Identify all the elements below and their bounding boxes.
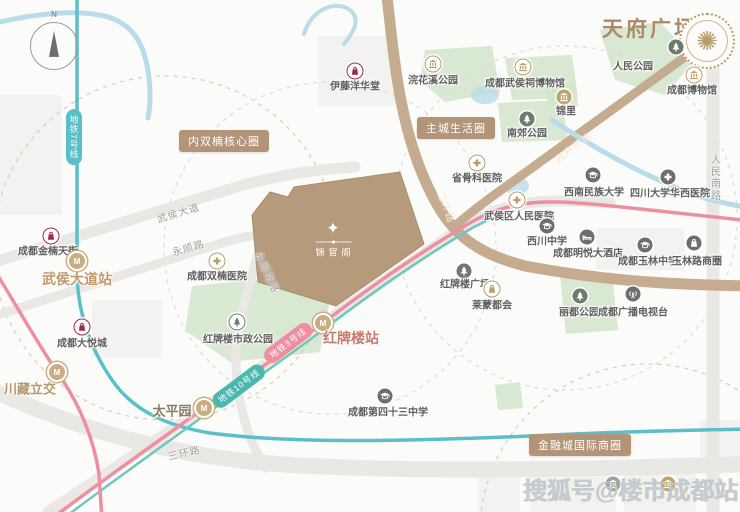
station-name: 武侯大道站	[42, 269, 112, 289]
poi-label: 锦里	[556, 103, 576, 118]
poi-label: 成都第四十三中学	[348, 404, 428, 419]
西南民族大学-icon	[586, 168, 601, 183]
location-map: N 天府广场 ✺ ✦ 锦官阁 伊藤洋华堂浣花溪公园成都武侯祠博物馆人民公园成都博…	[0, 0, 740, 512]
road-label: 人民南路	[707, 154, 722, 202]
人民公园-icon	[669, 40, 684, 55]
浣花溪公园-icon	[425, 56, 442, 73]
成都武侯祠博物馆-icon	[515, 59, 532, 76]
poi-label: 伊藤洋华堂	[330, 78, 380, 93]
station-name: 红牌楼站	[323, 328, 379, 348]
compass-north-label: N	[51, 10, 57, 19]
poi-label: 成都双楠医院	[187, 268, 247, 283]
metro-station-icon: M	[67, 251, 87, 271]
poi-label: 红牌楼广场	[440, 276, 490, 291]
红牌楼市政公园-icon	[229, 314, 246, 331]
metro-station-icon: M	[194, 398, 214, 418]
poi-label: 丽都公园	[559, 304, 599, 319]
project-logo-divider	[315, 242, 351, 243]
四川大学华西医院-icon	[661, 170, 676, 185]
poi-label: 四川大学华西医院	[630, 185, 710, 200]
西川中学-icon	[540, 219, 555, 234]
poi-label: 成都广播电视台	[598, 304, 668, 319]
project-ornament-icon: ✦	[311, 222, 354, 238]
tianfu-square-spiral-icon: ✺	[679, 13, 735, 69]
zone-label: 主城生活圈	[417, 117, 495, 139]
莱蒙都会-icon	[484, 281, 501, 298]
metro-line-label: 地铁7号线	[66, 109, 82, 165]
poi-label: 成都武侯祠博物馆	[485, 75, 565, 90]
sanhuan-road	[0, 388, 740, 470]
compass-needle	[49, 31, 59, 57]
poi-label: 浣花溪公园	[408, 72, 458, 87]
station-name: 川藏立交	[4, 379, 56, 398]
成都第四十三中学-icon	[378, 389, 393, 404]
成都大悦城-icon	[74, 319, 91, 336]
武侯区人民医院-icon	[509, 192, 526, 209]
watermark: 搜狐号@楼市成都站	[523, 471, 738, 506]
poi-label: 莱蒙都会	[472, 297, 512, 312]
poi-label: 南郊公园	[507, 125, 547, 140]
成都玉林中学-icon	[638, 238, 653, 253]
poi-label: 成都大悦城	[57, 335, 107, 350]
poi-label: 红牌楼市政公园	[203, 331, 273, 346]
成都广播电视台-icon	[626, 287, 641, 302]
small-green-area	[495, 382, 523, 410]
成都明悦大酒店-icon	[580, 230, 595, 245]
玉林路商圈-icon	[687, 236, 702, 251]
丽都公园-icon	[573, 289, 588, 304]
poi-label: 成都明悦大酒店	[553, 245, 623, 260]
poi-label: 成都博物馆	[667, 82, 717, 97]
project-name: 锦官阁	[315, 246, 354, 259]
poi-label: 成都玉林中学	[618, 253, 678, 268]
station-name: 太平园	[152, 401, 191, 420]
poi-label: 人民公园	[613, 58, 653, 73]
zone-label: 金融城国际商圈	[529, 434, 631, 456]
project-building-logo: ✦ 锦官阁	[311, 222, 354, 259]
poi-label: 西南民族大学	[564, 184, 624, 199]
compass-icon: N	[30, 22, 78, 70]
city-block	[0, 95, 62, 215]
poi-label: 省骨科医院	[452, 170, 502, 185]
poi-label: 玉林路商圈	[672, 253, 722, 268]
zone-label: 内双楠核心圈	[179, 130, 269, 152]
